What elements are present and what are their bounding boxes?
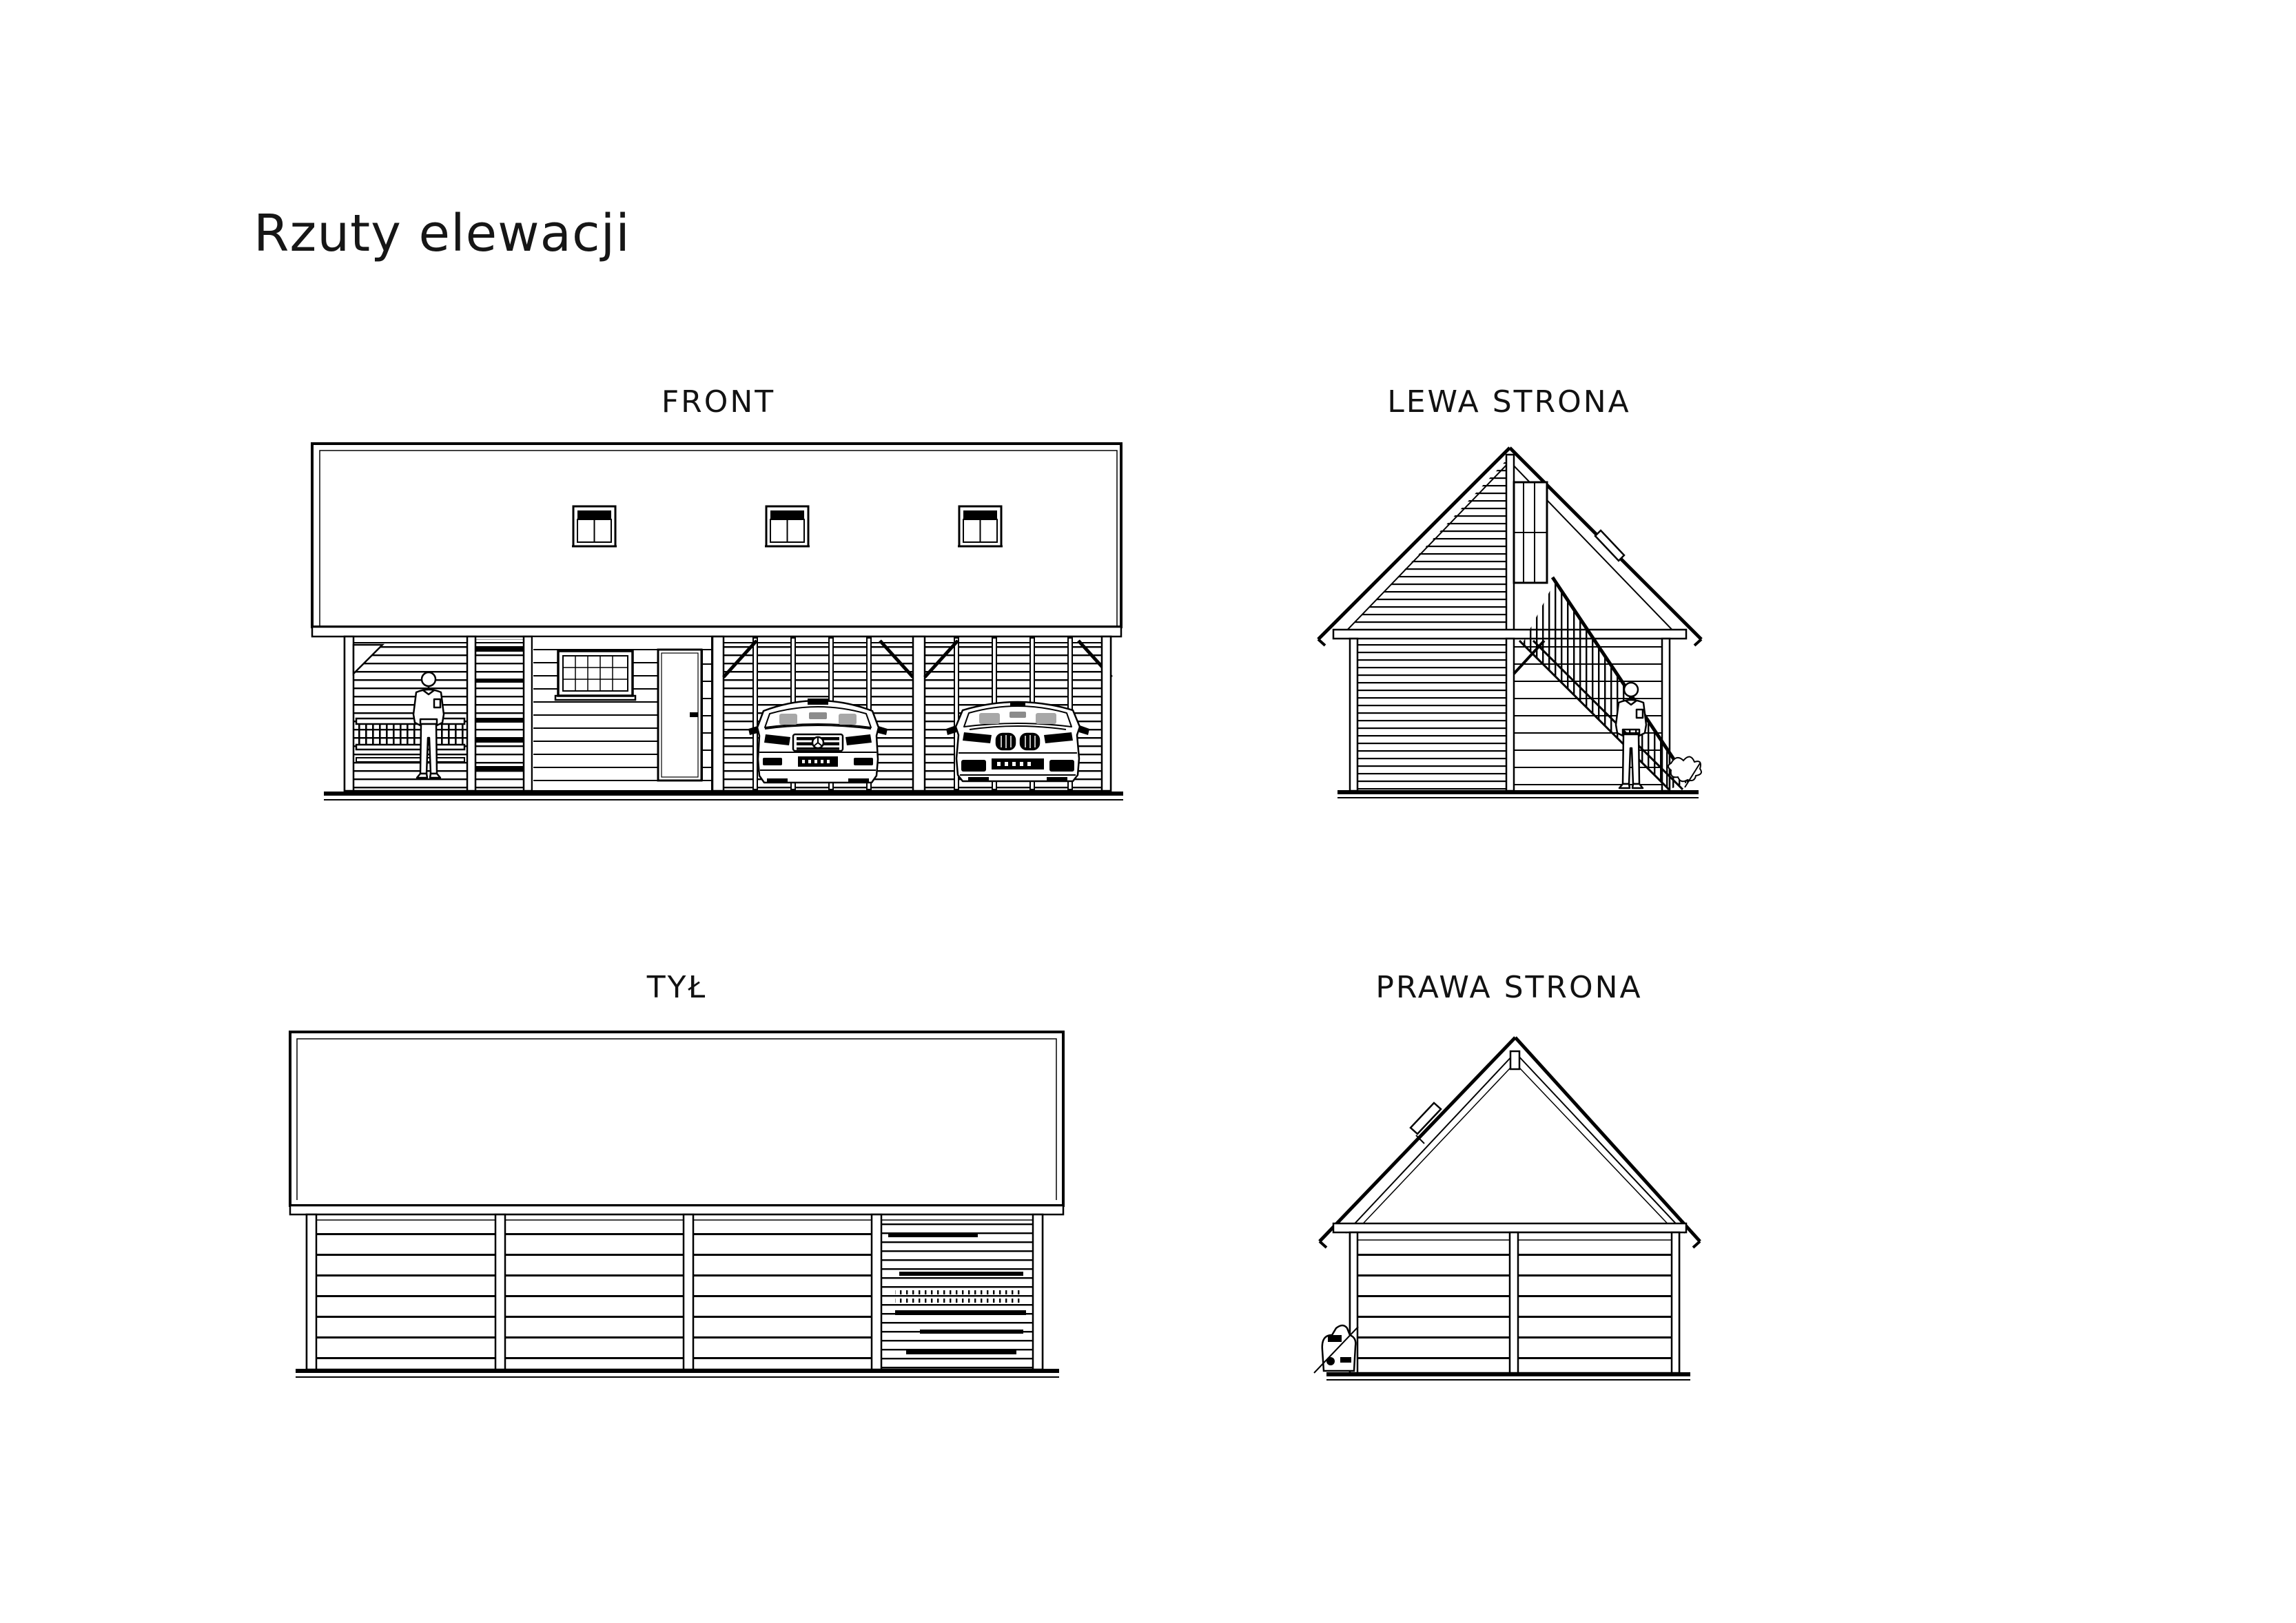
bay-post xyxy=(684,1214,693,1369)
ground-line xyxy=(1337,792,1699,798)
board-section xyxy=(693,1223,872,1369)
slat-section xyxy=(881,1221,1033,1369)
rear-elevation-drawing xyxy=(286,1026,1068,1381)
side-wall-slats xyxy=(1350,639,1508,791)
ground-line xyxy=(1326,1374,1690,1380)
railing-lower-rail xyxy=(356,758,464,762)
left-side-elevation-drawing xyxy=(1313,440,1705,801)
corner-post xyxy=(1672,1232,1679,1373)
entry-door xyxy=(658,650,701,781)
right-side-elevation-label: PRAWA STRONA xyxy=(1313,970,1705,1005)
board-section xyxy=(1357,1241,1510,1373)
left-side-elevation-label: LEWA STRONA xyxy=(1313,384,1705,420)
railing-balusters xyxy=(356,724,464,745)
porch-bay xyxy=(353,645,467,791)
front-elevation-drawing xyxy=(310,440,1127,805)
board-section xyxy=(505,1223,684,1369)
door-sidelight xyxy=(702,650,712,781)
ground-line xyxy=(296,1371,1059,1377)
entry-wall xyxy=(532,637,712,791)
board-section xyxy=(1518,1241,1672,1373)
attic-door xyxy=(1514,482,1547,583)
top-plate-beam xyxy=(1333,1223,1686,1232)
front-elevation-label: FRONT xyxy=(310,384,1127,420)
front-elevation-view: FRONT xyxy=(310,440,1127,805)
rear-elevation-label: TYŁ xyxy=(286,970,1068,1005)
corner-post xyxy=(1102,637,1111,791)
corner-post xyxy=(1350,639,1357,791)
railing-top-rail xyxy=(356,719,464,724)
rear-elevation-view: TYŁ xyxy=(286,1026,1068,1381)
car-sedan xyxy=(748,699,888,783)
bay-post xyxy=(913,637,925,791)
window xyxy=(555,651,635,700)
center-post xyxy=(1510,1232,1518,1373)
corner-post xyxy=(345,637,353,791)
corner-post xyxy=(1033,1214,1043,1369)
left-side-elevation-view: LEWA STRONA xyxy=(1313,440,1705,801)
trellis-strip xyxy=(467,637,532,791)
ridge-post xyxy=(1506,455,1514,638)
page-title: Rzuty elewacji xyxy=(254,204,631,263)
rear-roof xyxy=(290,1032,1063,1214)
railing-bottom-rail xyxy=(356,745,464,750)
right-side-elevation-drawing xyxy=(1313,1026,1705,1388)
ground-line xyxy=(324,794,1123,800)
right-side-elevation-view: PRAWA STRONA xyxy=(1313,1026,1705,1388)
corner-post xyxy=(307,1214,316,1369)
attic-window xyxy=(572,506,617,546)
bay-post xyxy=(872,1214,881,1369)
drawing-sheet: Rzuty elewacji xyxy=(0,0,2296,1623)
attic-window xyxy=(958,506,1003,546)
gable-rafters xyxy=(1354,1068,1677,1233)
top-plate-beam xyxy=(1333,630,1686,639)
bay-post xyxy=(713,637,724,791)
center-post xyxy=(1506,639,1514,791)
door-handle xyxy=(690,712,698,717)
bay-post xyxy=(495,1214,505,1369)
board-section xyxy=(316,1223,495,1369)
roof-window xyxy=(1595,530,1624,561)
attic-window xyxy=(765,506,810,546)
ridge-finial xyxy=(1510,1051,1519,1069)
car-suv xyxy=(946,701,1089,781)
